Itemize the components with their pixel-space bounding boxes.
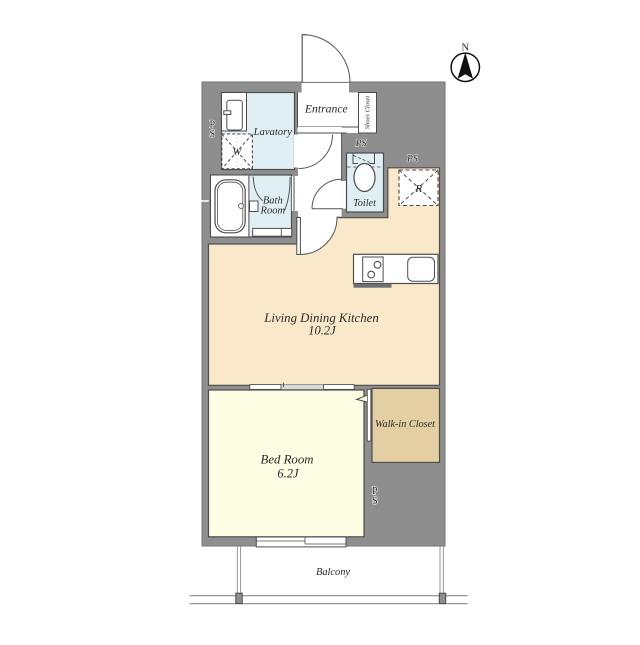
svg-text:Lavatory: Lavatory bbox=[253, 127, 293, 138]
svg-text:Toilet: Toilet bbox=[353, 198, 377, 209]
svg-text:PS: PS bbox=[406, 155, 418, 165]
svg-text:Walk-in Closet: Walk-in Closet bbox=[375, 419, 436, 430]
svg-text:6.2J: 6.2J bbox=[277, 467, 300, 481]
svg-text:Room: Room bbox=[260, 206, 286, 217]
svg-text:Bed Room: Bed Room bbox=[261, 453, 314, 467]
svg-text:R: R bbox=[414, 183, 422, 195]
svg-text:Shoes Closet: Shoes Closet bbox=[364, 96, 371, 130]
svg-text:N: N bbox=[462, 43, 470, 54]
svg-text:W: W bbox=[233, 147, 243, 158]
svg-text:10.2J: 10.2J bbox=[308, 324, 337, 338]
svg-text:Entrance: Entrance bbox=[304, 103, 348, 116]
svg-text:Balcony: Balcony bbox=[316, 567, 350, 578]
svg-text:S: S bbox=[372, 496, 378, 507]
svg-text:S: S bbox=[210, 129, 216, 140]
svg-text:PS: PS bbox=[355, 139, 367, 149]
